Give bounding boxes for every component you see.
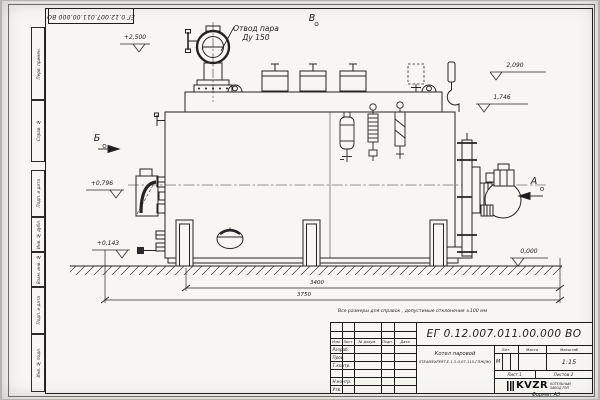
tb-col-doc: № докум.	[354, 338, 381, 345]
tb-col-list: Лист	[342, 338, 354, 345]
tb-col-izm: Изм.	[331, 338, 342, 345]
drawing-sheet-photo: ЕГ 0.12.007.011.00.000 ВО Перв. примен. …	[0, 0, 600, 400]
ground-line	[70, 266, 562, 275]
elevation-left-lower: +0,143	[90, 241, 126, 248]
steam-outlet-callout-line2: Ду 150	[228, 34, 284, 42]
tb-line	[331, 331, 416, 332]
left-side-connections	[136, 113, 165, 254]
elevation-right-mid: 1,746	[486, 95, 518, 102]
elevation-right-upper: 2,090	[499, 63, 531, 70]
tb-line	[354, 323, 355, 393]
reference-note: Все размеры для справок , допустимые отк…	[338, 309, 513, 314]
elevation-ground: 0,000	[513, 249, 545, 256]
tb-mass-header: Масса	[518, 345, 546, 353]
elevation-left-upper: +0,796	[84, 181, 120, 188]
tb-scale-header: Масштаб	[546, 345, 592, 353]
logo-subtitle-line2: ЗАВОД РЭП	[550, 386, 571, 390]
tb-sheet-number: Лист 1	[494, 370, 535, 378]
lifting-lugs	[228, 85, 436, 92]
tb-row-utv: Утв.	[331, 385, 354, 393]
tb-row-nkontr: Н.контр.	[331, 377, 354, 385]
tb-line	[331, 369, 416, 370]
dimension-inner-3400: 3400	[301, 280, 333, 286]
elevation-top: +2,500	[117, 35, 153, 42]
logo-barcode-icon	[507, 381, 514, 391]
tb-lit-header: Лит.	[494, 345, 518, 353]
title-block: ЕГ 0.12.007.011.00.000 ВО Изм. Лист № до…	[330, 322, 593, 394]
view-label-a: А	[528, 177, 540, 187]
logo-subtitle: КОТЕЛЬНЫЙ ЗАВОД РЭП	[550, 382, 571, 390]
tb-line	[502, 353, 503, 370]
steam-outlet-callout-line1: Отвод пара	[228, 25, 284, 33]
dimension-outer-3750: 3750	[288, 292, 320, 298]
tb-doc-number: ЕГ 0.12.007.011.00.000 ВО	[416, 323, 592, 345]
steam-outlet-valve	[186, 22, 233, 102]
format-label: Формат А3	[516, 393, 576, 399]
tb-row-tkontr: Т.контр.	[331, 361, 354, 369]
view-label-b: Б	[91, 134, 103, 144]
tb-product-name-line2: STEAMEXPERT-E-1,3-0,07-115-ГЛЖ(Ж)	[416, 358, 494, 366]
tb-col-podp: Подп.	[381, 338, 394, 345]
tb-lit-value: М	[494, 353, 502, 370]
tb-row-razrab: Разраб.	[331, 345, 354, 353]
tb-row-prov: Пров.	[331, 353, 354, 361]
tb-line	[394, 323, 395, 393]
tb-line	[381, 323, 382, 393]
tb-line	[510, 353, 511, 370]
tb-scale-value: 1:15	[546, 353, 592, 370]
safety-valves	[262, 64, 366, 92]
tb-col-data: Дата	[394, 338, 416, 345]
view-label-v: В	[306, 14, 318, 24]
burner-assembly	[472, 164, 521, 218]
tb-line	[494, 378, 592, 379]
logo-text: KVZR	[516, 380, 548, 391]
kvzr-logo: KVZR КОТЕЛЬНЫЙ ЗАВОД РЭП	[507, 380, 571, 391]
tb-sheets-total: Листов 2	[535, 370, 592, 378]
